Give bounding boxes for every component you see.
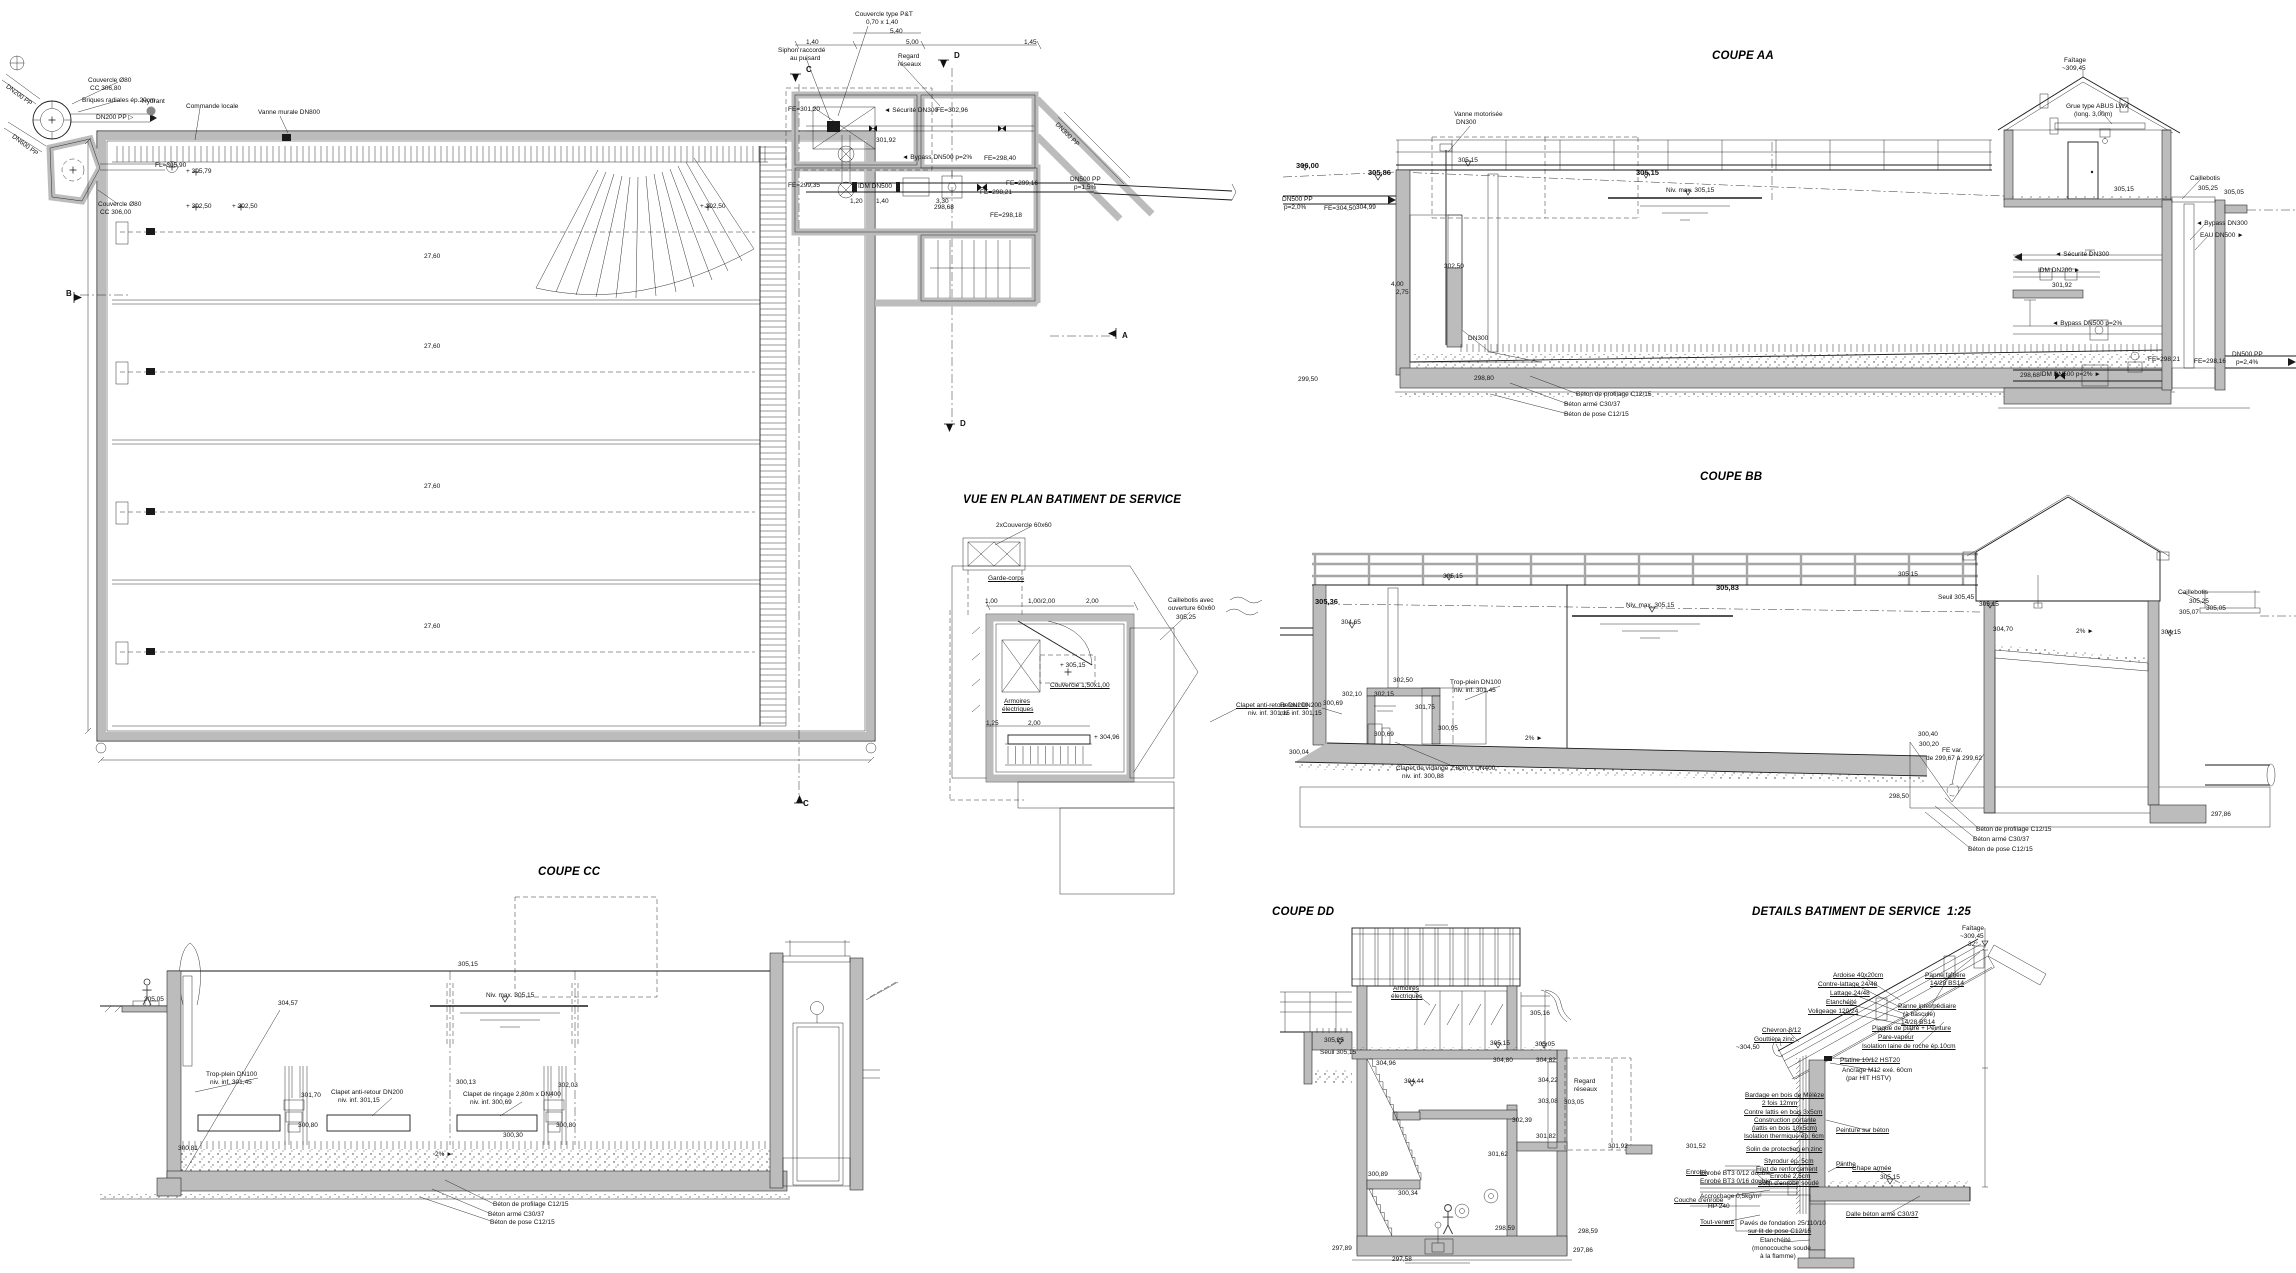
annotation-label: 302,10 <box>1342 692 1362 699</box>
annotation-label: FE=298,21 <box>2148 357 2180 364</box>
annotation-label: Tout-venant <box>1700 1220 1734 1227</box>
annotation-label: C <box>806 66 812 74</box>
annotation-label: 304,22 <box>1538 1078 1558 1085</box>
annotation-label: 300,80 <box>298 1123 318 1130</box>
annotation-label: 306,00 <box>1296 162 1319 170</box>
annotation-label: 302,15 <box>1374 692 1394 699</box>
annotation-label: Niv. max. 305,15 <box>486 993 534 1000</box>
annotation-label: Trop-plein DN100 <box>206 1072 257 1079</box>
annotation-label: Regard <box>898 54 919 61</box>
annotation-label: Couvercle Ø80 <box>88 78 131 85</box>
annotation-label: D <box>960 420 966 428</box>
annotation-label: Ancrage M12 exé. 60cm <box>1842 1068 1912 1075</box>
annotation-label: + 305,79 <box>186 169 211 176</box>
annotation-label: 2% ► <box>2076 629 2094 636</box>
annotation-label: 301,62 <box>1488 1152 1508 1159</box>
annotation-label: 298,68 <box>2020 373 2040 380</box>
annotation-label: niv. inf. 300,69 <box>470 1100 512 1107</box>
annotation-label: 305,25 <box>1176 615 1196 622</box>
annotation-label: ouverture 60x60 <box>1168 606 1215 613</box>
annotation-label: FE=299,35 <box>788 183 820 190</box>
annotation-label: Pavés de fondation 25/110/10 <box>1740 1221 1826 1228</box>
annotation-label: p=1,5% <box>1074 185 1096 192</box>
annotation-label: DN500 PP <box>1070 177 1101 184</box>
annotation-label: + 302,50 <box>186 204 211 211</box>
annotation-label: 305,15 <box>1458 158 1478 165</box>
annotation-label: 297,86 <box>1573 1248 1593 1255</box>
annotation-label: Commande locale <box>186 104 238 111</box>
annotation-label: CC 306,80 <box>90 86 121 93</box>
annotation-label: Béton de profilage C12/15 <box>493 1202 569 1209</box>
annotation-label: niv. inf. 301,45 <box>210 1080 252 1087</box>
annotation-label: ◄ Sécurité DN300 <box>884 108 938 115</box>
annotation-label: 305,15 <box>458 962 478 969</box>
annotation-label: Isolation thermique ép. 6cm <box>1744 1134 1824 1141</box>
annotation-label: ~309,45 <box>2062 66 2086 73</box>
annotation-label: 305,36 <box>1315 598 1338 606</box>
annotation-label: 5,40 <box>890 29 903 36</box>
annotation-label: (monocouche soudé <box>1752 1246 1811 1253</box>
annotation-label: ◄ Bypass DN300 <box>2196 221 2248 228</box>
annotation-label: Enrobé BT3 0/12 double <box>1700 1171 1770 1178</box>
annotation-label: ◄ Bypass DN500 p=2% <box>902 155 972 162</box>
annotation-label: 305,05 <box>2224 190 2244 197</box>
annotation-label: Panne intermédiaire <box>1898 1004 1956 1011</box>
annotation-label: Clapet anti-retour DN200 <box>331 1090 403 1097</box>
annotation-label: 305,05 <box>1535 1042 1555 1049</box>
annotation-label: 1,45 <box>1024 40 1037 47</box>
annotation-label: Faîtage <box>2064 58 2086 65</box>
annotation-label: B <box>66 290 72 298</box>
annotation-label: de 299,67 à 299,62 <box>1926 756 1982 763</box>
annotation-label: Regard <box>1574 1079 1595 1086</box>
annotation-label: Seuil 305,15 <box>1320 1050 1356 1057</box>
annotation-label: 303,08 <box>1538 1099 1558 1106</box>
annotation-label: 5,00 <box>906 40 919 47</box>
annotation-label: 2xCouvercle 60x60 <box>996 523 1052 530</box>
annotation-label: 305,86 <box>1368 169 1391 177</box>
annotation-label: 305,15 <box>1979 602 1999 609</box>
annotation-label: Béton de profilage C12/15 <box>1576 392 1652 399</box>
annotation-label: 304,96 <box>1376 1061 1396 1068</box>
annotation-label: Niv. max. 305,15 <box>1626 603 1674 610</box>
annotation-label: p=2,0% <box>1284 205 1306 212</box>
annotation-label: Isolation laine de roche ép.10cm <box>1862 1044 1956 1051</box>
annotation-label: DN300 <box>1468 336 1488 343</box>
annotation-label: niv. inf. 301,45 <box>1454 688 1496 695</box>
annotation-label: 304,65 <box>1341 620 1361 627</box>
annotation-label: 298,50 <box>1889 794 1909 801</box>
annotation-label: DN200 PP ▷ <box>96 115 133 122</box>
annotation-label: niv. inf. 300,88 <box>1402 774 1444 781</box>
annotation-label: IDM DN500 <box>858 184 892 191</box>
annotation-label: 301,70 <box>301 1093 321 1100</box>
annotation-label: à la flamme) <box>1760 1254 1796 1261</box>
annotation-label: 305,07 <box>2179 610 2199 617</box>
annotation-label: 301,92 <box>876 138 896 145</box>
annotation-label: 304,80 <box>1493 1058 1513 1065</box>
annotation-label: 304,70 <box>1993 627 2013 634</box>
annotation-label: 305,25 <box>2198 186 2218 193</box>
annotation-label: au puisard <box>790 56 820 63</box>
annotation-label: 27,60 <box>424 344 440 351</box>
annotation-label: 298,59 <box>1495 1226 1515 1233</box>
annotation-label: 305,15 <box>1880 1175 1900 1182</box>
annotation-label: 2,00 <box>1028 721 1041 728</box>
annotation-label: Couvercle Ø80 <box>98 202 141 209</box>
blueprint-page: COUPE AA COUPE BB VUE EN PLAN BATIMENT D… <box>0 0 2296 1273</box>
annotation-label: 1,40 <box>876 199 889 206</box>
annotation-label: Béton de profilage C12/15 <box>1976 827 2052 834</box>
annotation-label: 300,89 <box>1368 1172 1388 1179</box>
annotation-label: 300,81 <box>178 1146 198 1153</box>
annotation-label: Caillebotis <box>2190 176 2220 183</box>
annotation-label: CC 306,00 <box>100 210 131 217</box>
annotation-label: + 305,15 <box>1060 663 1085 670</box>
annotation-label: 1,25 <box>986 721 999 728</box>
annotation-label: 304,57 <box>278 1001 298 1008</box>
annotation-label: ~309,45 <box>1960 934 1984 941</box>
annotation-label: Caillebotis <box>2178 590 2208 597</box>
annotation-label: 300,20 <box>1919 742 1939 749</box>
annotation-label: sur lit de pose C12/15 <box>1748 1229 1811 1236</box>
annotation-label: FE=298,18 <box>990 213 1022 220</box>
annotation-label: 301,92 <box>1608 1144 1628 1151</box>
annotation-label: FE=298,16 <box>2194 359 2226 366</box>
annotation-label: IDM DN200 ► <box>2038 268 2080 275</box>
annotation-label: 304,15 <box>2161 630 2181 637</box>
annotation-label: Trop-plein DN100 <box>1450 680 1501 687</box>
annotation-label: Couvercle type P&T <box>855 12 913 19</box>
annotation-label: Enrobé BT3 0/16 double <box>1700 1179 1770 1186</box>
annotation-label: Ardoise 40x20cm <box>1833 973 1883 980</box>
annotation-label: 297,86 <box>2211 812 2231 819</box>
annotation-label: 305,05 <box>2206 606 2226 613</box>
annotation-label: Platine 10/12 HST20 <box>1840 1058 1900 1065</box>
annotation-label: DN300 PP <box>1053 122 1080 149</box>
annotation-label: FE=299,16 <box>1006 181 1038 188</box>
annotation-label: Vanne motorisée <box>1454 112 1503 119</box>
annotation-label: Béton armé C30/37 <box>488 1212 544 1219</box>
annotation-label: Lattage 24/48 <box>1830 991 1870 998</box>
annotation-label: Béton armé C30/37 <box>1973 837 2029 844</box>
annotation-label: Béton de pose C12/15 <box>490 1220 555 1227</box>
annotation-label: 27,60 <box>424 624 440 631</box>
annotation-label: Retour DN200 <box>1280 703 1322 710</box>
annotation-label: FE=304,50 <box>1324 206 1356 213</box>
annotation-label: 304,44 <box>1404 1079 1424 1086</box>
annotation-label: 304,99 <box>1356 205 1376 212</box>
annotation-label: électriques <box>1002 707 1033 714</box>
annotation-label: Chape armée <box>1852 1166 1891 1173</box>
annotation-label: Clapet de vidange 2,80m x DN400 <box>1396 766 1495 773</box>
annotation-label: 300,80 <box>556 1123 576 1130</box>
annotation-label: (à bascule) <box>1903 1012 1935 1019</box>
annotation-label: 3,30 <box>936 199 949 206</box>
annotation-label: Béton de pose C12/15 <box>1968 847 2033 854</box>
annotation-label: réseaux <box>898 62 921 69</box>
annotation-label: Faîtage <box>1962 926 1984 933</box>
annotation-label: 300,95 <box>1438 726 1458 733</box>
annotation-label: 305,25 <box>1324 1038 1344 1045</box>
annotation-label: Béton armé C30/37 <box>1564 402 1620 409</box>
annotation-label: 302,03 <box>558 1083 578 1090</box>
annotation-label: D <box>954 52 960 60</box>
annotation-label: 2% ► <box>1525 736 1543 743</box>
annotation-label: (lattis en bois 10x5cm) <box>1752 1126 1817 1133</box>
annotation-label: ◄ Bypass DN500 p=2% <box>2052 321 2122 328</box>
annotation-label: 2% ► <box>435 1152 453 1159</box>
annotation-label: 297,89 <box>1332 1246 1352 1253</box>
annotation-label: 300,69 <box>1374 732 1394 739</box>
annotation-label: FL=305,90 <box>155 163 186 170</box>
annotation-label: 303,05 <box>1564 1100 1584 1107</box>
annotation-label: 298,59 <box>1578 1229 1598 1236</box>
annotation-label: A <box>1122 332 1128 340</box>
annotation-label: (long. 3,00m) <box>2074 112 2112 119</box>
annotation-label: + 304,96 <box>1094 735 1119 742</box>
annotation-label: C <box>803 800 809 808</box>
annotation-label: 2,75 <box>1396 290 1409 297</box>
annotation-label: FE=298,21 <box>980 190 1012 197</box>
annotation-label: Couvercle 1,50x1,00 <box>1050 683 1110 690</box>
annotation-label: Niv. max. 305,15 <box>1666 188 1714 195</box>
annotation-label: 298,68 <box>934 205 954 212</box>
annotation-label: IDM DN500 p=2% ► <box>2040 372 2101 379</box>
annotation-label: FE var. <box>1942 748 1963 755</box>
annotation-label: 14/28 BS14 <box>1930 981 1964 988</box>
annotation-label: Accrochage 0,5kg/m² <box>1700 1194 1761 1201</box>
annotation-label: 305,15 <box>2114 187 2134 194</box>
annotation-label: (par HIT HSTV) <box>1846 1076 1891 1083</box>
annotation-label: Pare-vapeur <box>1878 1035 1914 1042</box>
annotation-label: Construction portante <box>1754 1118 1816 1125</box>
annotation-label: 305,83 <box>1716 584 1739 592</box>
annotation-label: 300,69 <box>1323 701 1343 708</box>
annotation-label: 2 fois 12mm <box>1762 1101 1797 1108</box>
annotation-label: Peinture sur béton <box>1836 1128 1889 1135</box>
annotation-label: Styrodur ép. 5cm <box>1764 1159 1814 1166</box>
annotation-label: ◄ Sécurité DN300 <box>2055 252 2109 259</box>
annotation-label: Armoires <box>1393 986 1419 993</box>
annotation-label: Voligeage 120/24 <box>1808 1009 1858 1016</box>
annotation-label: Chevron 8/12 <box>1762 1028 1801 1035</box>
annotation-label: ~304,50 <box>1736 1045 1760 1052</box>
annotation-label: 305,05 <box>144 997 164 1004</box>
annotation-label: Etanchéité <box>1826 1000 1857 1007</box>
annotation-label: DN500 PP <box>1282 197 1313 204</box>
annotation-label: 1,40 <box>806 40 819 47</box>
annotation-label: 32° <box>1968 942 1978 949</box>
annotation-label: 297,58 <box>1392 1257 1412 1264</box>
annotation-label: 301,52 <box>1686 1144 1706 1151</box>
annotation-label: FE=301,20 <box>788 107 820 114</box>
annotation-layer: Couvercle Ø80CC 306,80Briques radiales é… <box>0 0 2296 1273</box>
annotation-label: Plaque de plâtre + Peinture <box>1872 1026 1951 1033</box>
annotation-label: 305,15 <box>1443 574 1463 581</box>
annotation-label: 305,16 <box>1530 1011 1550 1018</box>
annotation-label: Contre lattis en bois 3x5cm <box>1744 1110 1822 1117</box>
annotation-label: 299,50 <box>1298 377 1318 384</box>
annotation-label: FE=298,40 <box>984 156 1016 163</box>
annotation-label: 302,50 <box>1444 264 1464 271</box>
annotation-label: Contre-lattage 24/48 <box>1818 982 1877 989</box>
annotation-label: Grue type ABUS LWX <box>2066 104 2129 111</box>
annotation-label: 304,82 <box>1536 1058 1556 1065</box>
annotation-label: Panne faîtière <box>1925 973 1965 980</box>
annotation-label: 300,30 <box>503 1133 523 1140</box>
annotation-label: Béton de pose C12/15 <box>1564 412 1629 419</box>
annotation-label: niv. inf. 301,15 <box>338 1098 380 1105</box>
annotation-label: Etanchéité <box>1760 1238 1791 1245</box>
annotation-label: HP 240 <box>1708 1204 1730 1211</box>
annotation-label: 305,15 <box>1636 169 1659 177</box>
annotation-label: EAU DN500 ► <box>2200 233 2244 240</box>
annotation-label: Siphon raccordé <box>778 48 825 55</box>
annotation-label: Seuil 305,45 <box>1938 595 1974 602</box>
annotation-label: électriques <box>1391 994 1422 1001</box>
annotation-label: 27,60 <box>424 484 440 491</box>
annotation-label: + 302,50 <box>700 204 725 211</box>
annotation-label: Caillebotis avec <box>1168 598 1214 605</box>
annotation-label: Clapet de rinçage 2,80m x DN400 <box>463 1092 561 1099</box>
annotation-label: 300,04 <box>1289 750 1309 757</box>
annotation-label: 301,92 <box>2052 283 2072 290</box>
annotation-label: + 302,50 <box>232 204 257 211</box>
annotation-label: Garde-corps <box>988 576 1024 583</box>
annotation-label: 1,20 <box>850 199 863 206</box>
annotation-label: 0,70 x 1,40 <box>866 20 898 27</box>
annotation-label: Vanne murale DN800 <box>258 110 320 117</box>
annotation-label: 1,00 <box>985 599 998 606</box>
annotation-label: Dalle béton armé C30/37 <box>1846 1212 1918 1219</box>
annotation-label: 301,75 <box>1415 705 1435 712</box>
annotation-label: Solin de protection en zinc <box>1746 1147 1822 1154</box>
annotation-label: réseaux <box>1574 1087 1597 1094</box>
annotation-label: DN200 PP <box>4 84 33 108</box>
annotation-label: 1,00/2,00 <box>1028 599 1055 606</box>
annotation-label: Armoires <box>1004 699 1030 706</box>
annotation-label: Gouttière zinc <box>1754 1037 1794 1044</box>
annotation-label: DN300 <box>1456 120 1476 127</box>
annotation-label: 300,34 <box>1398 1191 1418 1198</box>
annotation-label: DN600 PP <box>10 134 39 158</box>
annotation-label: 302,50 <box>1393 678 1413 685</box>
annotation-label: 2,00 <box>1086 599 1099 606</box>
annotation-label: 27,60 <box>424 254 440 261</box>
annotation-label: Hydrant <box>142 99 165 106</box>
annotation-label: 305,15 <box>1898 572 1918 579</box>
annotation-label: DN500 PP <box>2232 352 2263 359</box>
annotation-label: 300,40 <box>1918 732 1938 739</box>
annotation-label: Bardage en bois de Mélèze <box>1745 1093 1824 1100</box>
annotation-label: niv. inf. 301,15 <box>1280 711 1322 718</box>
annotation-label: 301,82 <box>1536 1134 1556 1141</box>
annotation-label: 300,13 <box>456 1080 476 1087</box>
annotation-label: 298,80 <box>1474 376 1494 383</box>
annotation-label: 302,39 <box>1512 1118 1532 1125</box>
annotation-label: 4,00 <box>1391 282 1404 289</box>
annotation-label: 305,15 <box>1490 1041 1510 1048</box>
annotation-label: p=2,4% <box>2236 360 2258 367</box>
annotation-label: FE=302,96 <box>936 108 968 115</box>
